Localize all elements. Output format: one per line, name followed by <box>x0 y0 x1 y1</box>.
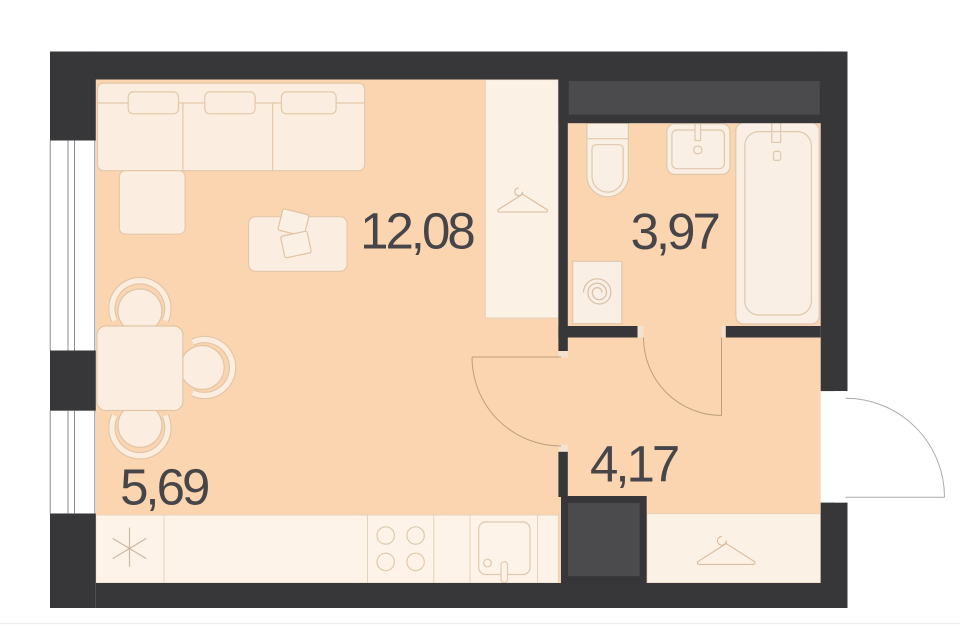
svg-text:5,69: 5,69 <box>120 458 208 515</box>
svg-text:4,17: 4,17 <box>590 435 678 492</box>
svg-text:12,08: 12,08 <box>360 202 474 259</box>
svg-text:3,97: 3,97 <box>631 203 719 260</box>
